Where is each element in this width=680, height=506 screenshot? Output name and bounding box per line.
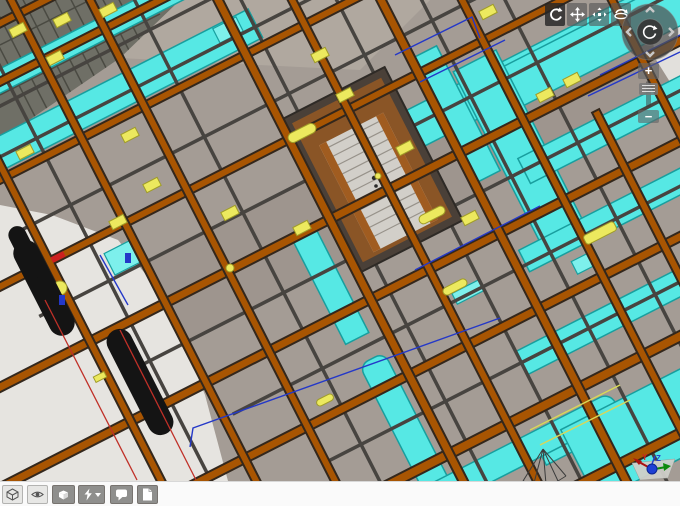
zoom-slider-track[interactable] — [646, 81, 651, 107]
chevron-down-icon — [95, 493, 101, 497]
axis-y-label: Y — [642, 453, 648, 462]
cube-icon — [6, 488, 19, 501]
zoom-in-button[interactable]: + — [638, 63, 659, 79]
orbit-button[interactable] — [545, 3, 565, 26]
zoom-slider-handle[interactable] — [639, 83, 658, 95]
document-button[interactable] — [137, 485, 158, 504]
bottom-toolbar: D…B…O…www.ChinaDBO.com — [0, 481, 680, 506]
zoom-extents-button[interactable] — [589, 3, 609, 26]
navigation-wheel — [620, 1, 680, 63]
model-viewport-3d[interactable]: Y Z — [0, 0, 680, 481]
clash-tools-button[interactable] — [78, 485, 105, 504]
model-view-button[interactable] — [2, 485, 23, 504]
document-icon — [142, 488, 153, 501]
lightning-icon — [83, 488, 93, 501]
section-box-button[interactable] — [52, 485, 75, 504]
section-box-icon — [57, 488, 70, 501]
comment-icon — [115, 488, 128, 501]
axis-origin-sphere — [647, 464, 657, 474]
bim-viewer-window: Y Z — [0, 0, 680, 506]
zoom-control: + − — [638, 62, 659, 126]
axis-z-label: Z — [656, 454, 661, 463]
wheel-orbit-button[interactable] — [637, 19, 663, 45]
pan-zoom-icon — [592, 7, 607, 22]
comments-button[interactable] — [110, 485, 133, 504]
pan-icon — [570, 7, 585, 22]
orbit-icon — [548, 7, 563, 22]
view-toolbar — [545, 3, 631, 26]
visibility-button[interactable] — [27, 485, 48, 504]
eye-icon — [31, 488, 44, 501]
pan-button[interactable] — [567, 3, 587, 26]
zoom-out-button[interactable]: − — [638, 110, 659, 123]
